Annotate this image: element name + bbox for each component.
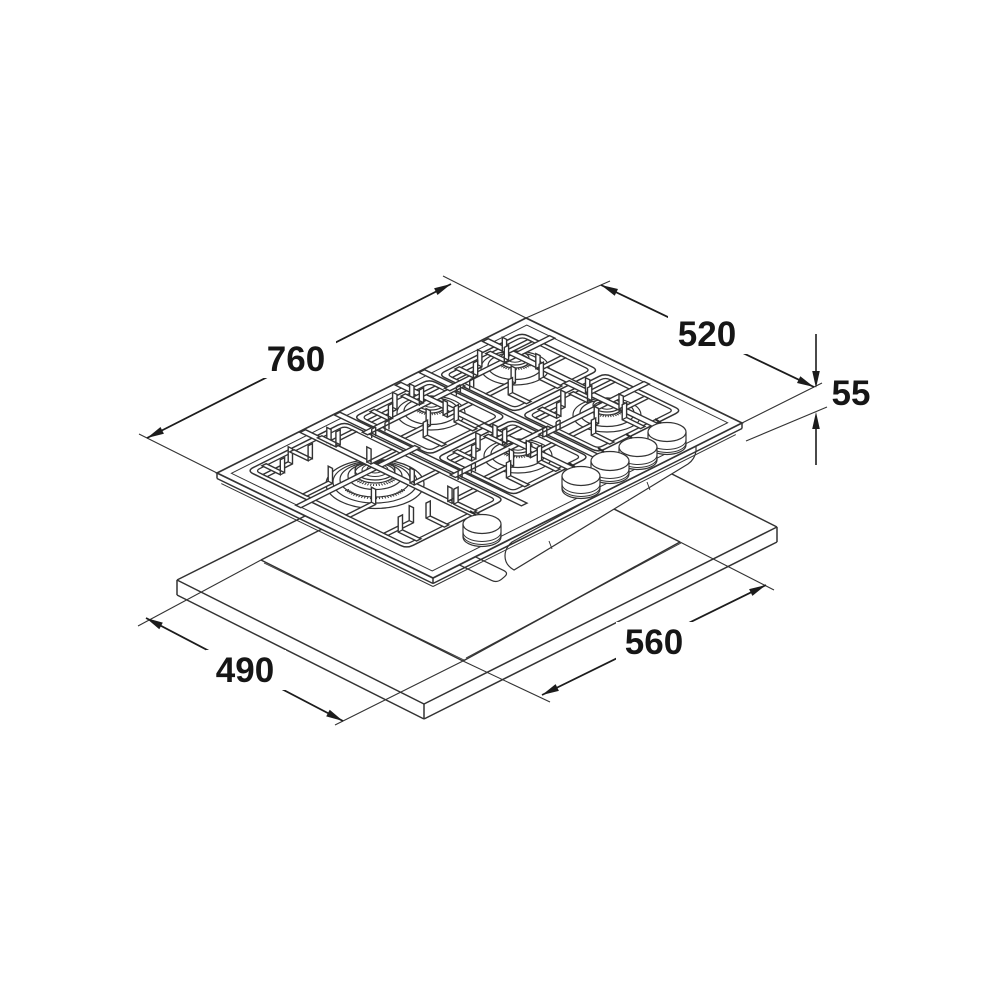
svg-text:490: 490 bbox=[216, 651, 274, 690]
svg-text:55: 55 bbox=[832, 374, 871, 413]
svg-text:560: 560 bbox=[625, 623, 683, 662]
svg-text:520: 520 bbox=[678, 315, 736, 354]
svg-text:760: 760 bbox=[267, 340, 325, 379]
